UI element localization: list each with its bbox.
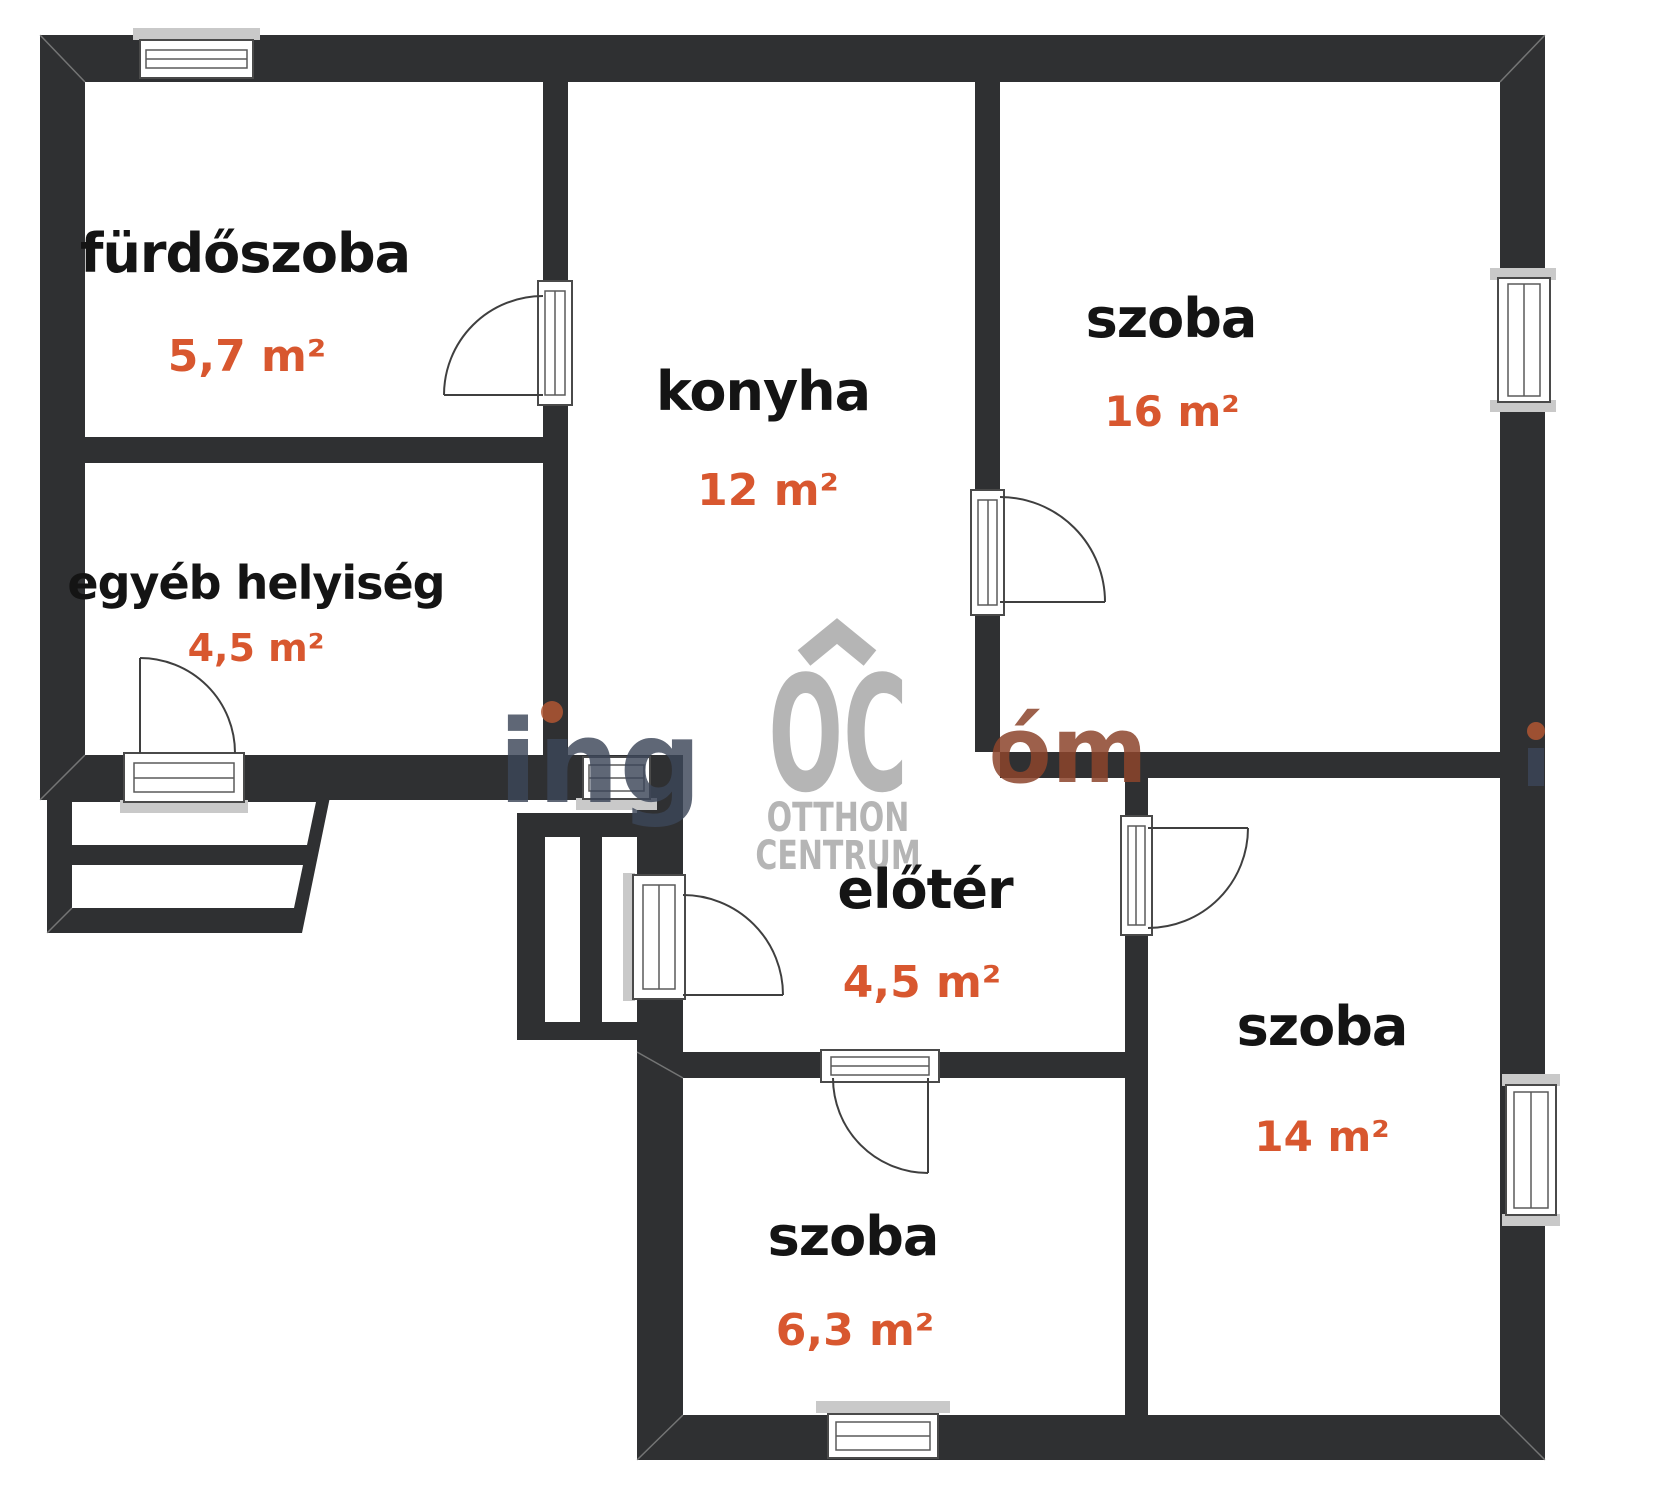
wall-bottom xyxy=(637,1415,1545,1460)
floor-plan: OC OTTHON CENTRUM ing óm fürdőszoba 5,7 … xyxy=(0,0,1676,1502)
room-label-eloter: előtér xyxy=(837,858,1014,921)
room-label-szoba-16: szoba xyxy=(1086,287,1257,350)
stoop-back-steps xyxy=(47,797,330,933)
window-bathroom-top xyxy=(133,28,260,78)
room-area-szoba-16: 16 m² xyxy=(1104,387,1239,436)
wall-right-outer xyxy=(1500,35,1545,1460)
door-swing-arc xyxy=(1000,497,1105,602)
room-label-konyha: konyha xyxy=(656,360,870,423)
watermark-tile-stem xyxy=(1528,748,1544,786)
wall-kitchen-room16 xyxy=(975,82,1000,752)
door-swing-arc xyxy=(444,296,543,395)
watermark-fragment-left: ing xyxy=(498,696,702,830)
window-room16-right xyxy=(1490,268,1556,412)
door-swing-arc xyxy=(833,1078,928,1173)
door-hall-room14 xyxy=(1121,816,1248,935)
room-label-szoba-63: szoba xyxy=(768,1205,939,1268)
room-area-konyha: 12 m² xyxy=(697,465,839,516)
wall-room63-left xyxy=(637,1078,683,1460)
window-room63-bottom xyxy=(816,1401,950,1458)
watermark-fragment-right: óm xyxy=(988,697,1147,804)
door-hall-room63 xyxy=(821,1050,939,1173)
door-kitchen-room16 xyxy=(971,490,1105,615)
door-bathroom-kitchen xyxy=(444,281,572,405)
wall-bathroom-kitchen xyxy=(543,82,568,763)
watermark-oc-logo: OC OTTHON CENTRUM xyxy=(755,631,920,879)
door-back-room xyxy=(120,658,248,813)
window-sill xyxy=(133,28,260,40)
window-room14-right xyxy=(1502,1074,1560,1226)
door-swing-arc xyxy=(140,658,235,753)
wall-top xyxy=(40,35,1545,82)
wall-bathroom-bottom xyxy=(85,437,568,463)
room-area-furdoszoba: 5,7 m² xyxy=(168,331,326,382)
door-main-entrance xyxy=(623,873,783,1001)
stoop-back-step-2 xyxy=(72,865,303,908)
room-area-eloter: 4,5 m² xyxy=(843,957,1001,1008)
stoop-entrance-steps xyxy=(517,813,637,1040)
room-label-szoba-14: szoba xyxy=(1237,995,1408,1058)
room-area-szoba-63: 6,3 m² xyxy=(776,1305,934,1356)
stoop-entrance-step-1 xyxy=(545,837,580,1022)
watermark-i-dot xyxy=(541,701,563,723)
room-area-szoba-14: 14 m² xyxy=(1254,1112,1389,1161)
room-label-furdoszoba: fürdőszoba xyxy=(80,222,410,285)
watermark-tile-dot xyxy=(1527,722,1545,740)
room-area-egyeb-helyiseg: 4,5 m² xyxy=(188,626,325,670)
door-swing-arc xyxy=(1148,828,1248,928)
room-label-egyeb-helyiseg: egyéb helyiség xyxy=(67,556,444,610)
door-swing-arc xyxy=(683,895,783,995)
wall-left-outer xyxy=(40,35,85,800)
window-sill xyxy=(816,1401,950,1413)
